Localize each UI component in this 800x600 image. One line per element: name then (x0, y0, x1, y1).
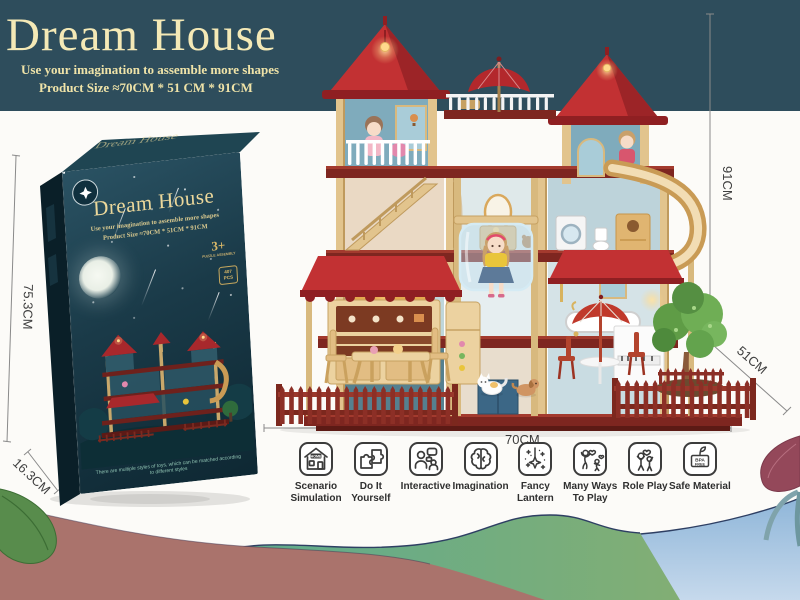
box-top-title: Dream House (92, 131, 181, 151)
doll-in-elevator (478, 232, 514, 298)
washing-machine (556, 216, 586, 250)
staircase (346, 184, 437, 250)
page-title: Dream House (6, 8, 277, 62)
leaf-decoration-left (0, 488, 56, 564)
elevator (454, 178, 538, 416)
kitchen-wing (300, 256, 480, 416)
dim-box-depth: 16.3CM (10, 455, 54, 497)
feature-label: Safe Material (662, 481, 738, 493)
fancy-lantern-icon (518, 442, 552, 476)
feature-diy: Do It Yourself (344, 442, 398, 505)
interactive-icon (409, 442, 443, 476)
feature-many-ways: Many Ways To Play (563, 442, 617, 505)
kitchen-awning (300, 256, 462, 294)
yard-fence-right (612, 378, 756, 420)
yard-fence-left (276, 384, 458, 426)
tree (652, 282, 727, 397)
box-house-illustration (73, 300, 254, 469)
right-awning (548, 250, 684, 282)
free-label: FREE (695, 463, 706, 467)
feature-role-play: Role Play (618, 442, 672, 505)
many-ways-icon (573, 442, 607, 476)
piano (614, 326, 664, 388)
spiral-slide (612, 168, 698, 416)
floor-slabs (304, 166, 742, 431)
toilet (593, 241, 609, 251)
floor3-furniture (348, 261, 640, 337)
patio-area (548, 250, 684, 388)
pillars (336, 96, 669, 416)
product-sheet: Dream House Use your imagination to asse… (0, 0, 800, 600)
leaf-decoration-right (761, 436, 800, 546)
feature-row: HOME Scenario Simulation Do It Yourself (289, 442, 727, 505)
dim-box-height: 75.3CM (20, 284, 36, 330)
banner-subtitle: Use your imagination to assemble more sh… (21, 62, 279, 78)
feature-safe-material: BPA FREE Safe Material (673, 442, 727, 505)
patio-chairs (558, 332, 645, 379)
vanity-mirror (485, 195, 511, 229)
pet-puppy (513, 379, 539, 398)
elevator-glass (460, 224, 532, 290)
kitchen-hutch (328, 300, 440, 384)
fridge (446, 302, 480, 384)
safe-material-icon: BPA FREE (683, 442, 717, 476)
imagination-icon (464, 442, 498, 476)
diy-icon (354, 442, 388, 476)
home-label: HOME (311, 454, 322, 458)
pieces-badge: 407 PCS (218, 265, 238, 285)
elevator-door (478, 380, 518, 414)
feature-interactive: Interactive (399, 442, 453, 505)
age-badge: 3+ PUZZLE ASSEMBLY (201, 237, 235, 259)
scenario-simulation-icon: HOME (299, 442, 333, 476)
role-play-icon (628, 442, 662, 476)
rooms (344, 96, 660, 416)
dim-house-height: 91CM (720, 166, 735, 201)
dining-set (326, 328, 449, 383)
umbrella-table (572, 295, 630, 384)
dim-house-depth: 51CM (734, 343, 770, 377)
gold-sofa (352, 290, 426, 308)
floor2-furniture (346, 178, 650, 252)
pet-cat (478, 373, 507, 397)
bathtub (566, 312, 640, 332)
banner-product-size: Product Size ≈70CM * 51 CM * 91CM (39, 80, 253, 96)
box-front-face: Dream House Use your imagination to asse… (62, 152, 258, 494)
